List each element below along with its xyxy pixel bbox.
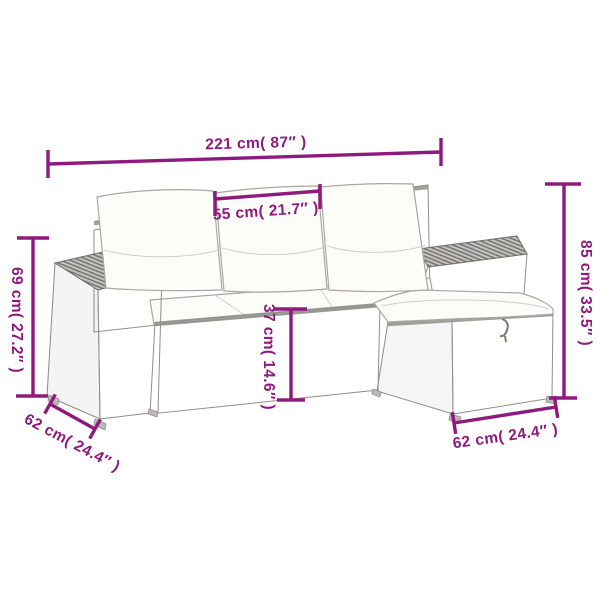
footstool-left-shading [377, 318, 453, 414]
product-dimension-diagram: 221 cm( 87″ ) 55 cm( 21.7″ ) 85 cm( 33.5… [0, 0, 600, 600]
dimension-footstool-depth: 62 cm( 24.4″ ) [452, 396, 559, 452]
dimension-label-armrest-height: 69 cm( 27.2″ ) [8, 267, 25, 373]
dimension-label-left-depth: 62 cm( 24.4″ ) [21, 411, 123, 476]
footstool [374, 290, 553, 414]
back-pillow-right [321, 184, 428, 292]
right-armrest-top-face [418, 236, 527, 267]
dimension-line [545, 184, 581, 398]
left-armrest-front-face [98, 272, 162, 419]
dimension-label-seat-height: 37 cm( 14.6″ ) [260, 304, 277, 410]
dimension-total-width: 221 cm( 87″ ) [48, 134, 441, 178]
back-pillows [97, 184, 428, 292]
sofa-set [47, 184, 557, 430]
dimension-label-total-width: 221 cm( 87″ ) [205, 134, 307, 154]
dimension-seat-height: 37 cm( 14.6″ ) [260, 304, 307, 410]
dimension-line [274, 309, 307, 400]
right-armrest [418, 236, 527, 294]
dimension-label-total-height: 85 cm( 33.5″ ) [577, 240, 594, 346]
sofa-dimension-illustration: 221 cm( 87″ ) 55 cm( 21.7″ ) 85 cm( 33.5… [0, 0, 600, 600]
dimension-label-footstool-depth: 62 cm( 24.4″ ) [452, 421, 559, 453]
dimension-armrest-height: 69 cm( 27.2″ ) [8, 238, 49, 396]
footstool-right-face [452, 312, 553, 414]
back-pillow-left [97, 190, 222, 291]
